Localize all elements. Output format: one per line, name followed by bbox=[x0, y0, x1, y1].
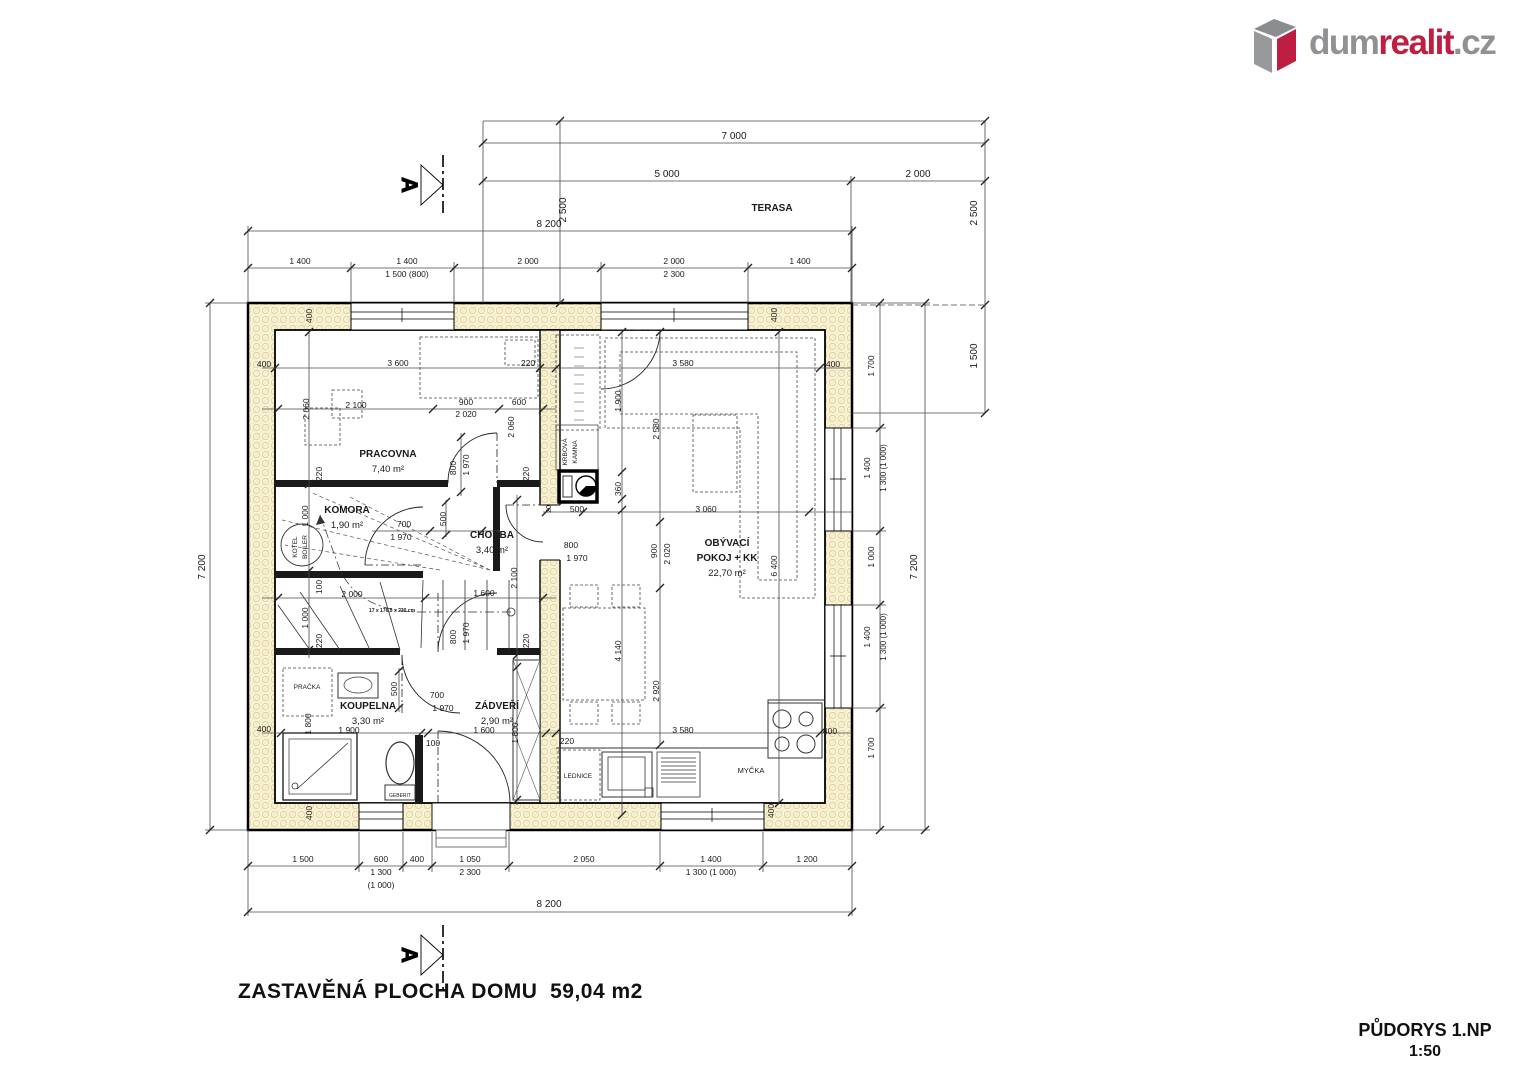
dim-label: 3 600 bbox=[387, 358, 409, 368]
dim-label: 600 bbox=[374, 854, 388, 864]
toilet-label: GEBERIT bbox=[389, 793, 411, 799]
room-name: TERASA bbox=[751, 203, 792, 214]
dim-label: 2 000 bbox=[341, 589, 363, 599]
dishwasher-label: MYČKA bbox=[738, 766, 765, 775]
dim-label: 2 500 bbox=[558, 197, 569, 222]
dim-label: 2 020 bbox=[662, 543, 672, 565]
window-koupelna bbox=[359, 803, 403, 830]
dim-label: 220 bbox=[560, 736, 574, 746]
section-triangle-top bbox=[421, 165, 443, 205]
dim-label: 2 050 bbox=[573, 854, 595, 864]
fireplace-label: KRBOVÁ bbox=[560, 438, 569, 466]
dim-label: 2 580 bbox=[651, 418, 661, 440]
dim-label: 2 060 bbox=[506, 416, 516, 438]
dim-label: 1 970 bbox=[461, 622, 471, 644]
dim-label: 800 bbox=[448, 461, 458, 475]
room-area: 2,90 m² bbox=[481, 716, 513, 727]
dim-label: 1 300 bbox=[370, 867, 392, 877]
floor-plan-sheet: dumrealit.cz dumrealit.cz bbox=[0, 0, 1527, 1080]
section-label-top: A bbox=[397, 177, 422, 193]
dim-label: 1 700 bbox=[866, 355, 876, 377]
room-name: PRACOVNA bbox=[359, 449, 416, 460]
window-living-lower bbox=[825, 605, 852, 708]
fireplace-label: KAMNA bbox=[572, 440, 579, 464]
dim-label: 1 200 bbox=[796, 854, 818, 864]
entrance-steps bbox=[436, 830, 506, 847]
drawing-scale: 1:50 bbox=[1340, 1043, 1510, 1061]
dim-label: 700 bbox=[430, 690, 444, 700]
dim-label: 1 700 bbox=[866, 737, 876, 759]
dim-label: 8 200 bbox=[536, 899, 561, 910]
dim-label: 2 100 bbox=[509, 567, 519, 589]
entrance-door-opening bbox=[432, 803, 510, 830]
dim-label: 3 580 bbox=[672, 725, 694, 735]
dim-label: 900 bbox=[459, 397, 473, 407]
dim-label: 7 200 bbox=[909, 554, 920, 579]
dim-label: 400 bbox=[823, 726, 837, 736]
room-area: 3,30 m² bbox=[352, 716, 384, 727]
dim-label: 400 bbox=[410, 854, 424, 864]
washer-label: PRAČKA bbox=[294, 682, 321, 691]
dim-label: 220 bbox=[521, 467, 531, 481]
dim-label: 2 000 bbox=[663, 256, 685, 266]
window-living-upper bbox=[825, 428, 852, 531]
dim-label: 600 bbox=[512, 397, 526, 407]
logo-part2: realit bbox=[1378, 23, 1453, 62]
logo-part1: dum bbox=[1309, 23, 1378, 62]
dim-label: 1 800 bbox=[303, 713, 313, 735]
dim-label: 1 400 bbox=[862, 457, 872, 479]
dim-label: 2 000 bbox=[905, 169, 930, 180]
dim-label: 1 970 bbox=[461, 454, 471, 476]
title-block: PŮDORYS 1.NP 1:50 bbox=[1340, 1020, 1510, 1061]
window-terrace-door bbox=[601, 303, 748, 330]
dim-label: 360 bbox=[613, 482, 623, 496]
dim-label: 7 200 bbox=[197, 554, 208, 579]
dim-label: 1 050 bbox=[459, 854, 481, 864]
dim-label: 1 300 (1 000) bbox=[879, 613, 888, 661]
dim-label: 800 bbox=[448, 630, 458, 644]
dim-label: 1 500 bbox=[292, 854, 314, 864]
room-name: OBÝVACÍ bbox=[705, 536, 750, 549]
dim-label: 2 020 bbox=[455, 409, 477, 419]
dim-label: 400 bbox=[257, 359, 271, 369]
boiler-label: BOILER bbox=[302, 535, 309, 559]
dumrealit-logo: dumrealit.cz bbox=[1251, 12, 1495, 74]
dim-label: 1 000 bbox=[300, 505, 310, 527]
logo-part3: .cz bbox=[1453, 23, 1495, 62]
dim-label: 2 000 bbox=[517, 256, 539, 266]
room-name: CHODBA bbox=[470, 530, 514, 541]
room-name: POKOJ + KK bbox=[697, 553, 759, 564]
dim-label: 1 000 bbox=[866, 546, 876, 568]
room-name: KOMORA bbox=[324, 505, 370, 516]
dim-label: 4 140 bbox=[613, 640, 623, 662]
dim-label: 1 300 (1 000) bbox=[686, 867, 737, 877]
drawing-title: PŮDORYS 1.NP bbox=[1340, 1020, 1510, 1041]
window-kitchen bbox=[661, 803, 764, 830]
room-area: 22,70 m² bbox=[708, 568, 746, 579]
dim-label: 2 500 bbox=[969, 200, 980, 225]
dim-label: 220 bbox=[521, 634, 531, 648]
dim-label: 1 600 bbox=[473, 588, 495, 598]
section-label-bottom: A bbox=[397, 947, 422, 963]
dim-label: 1 400 bbox=[862, 626, 872, 648]
dim-label: 2 100 bbox=[345, 400, 367, 410]
room-name: KOUPELNA bbox=[340, 701, 396, 712]
dim-label: 6 400 bbox=[769, 555, 779, 577]
dim-label: 900 bbox=[649, 544, 659, 558]
dim-label: 400 bbox=[304, 309, 314, 323]
dim-label: 1 400 bbox=[789, 256, 811, 266]
dim-label: 5 000 bbox=[654, 169, 679, 180]
dim-label: 1 970 bbox=[432, 703, 454, 713]
boiler-label: KOTEL bbox=[292, 536, 299, 558]
dim-label: 1 400 bbox=[289, 256, 311, 266]
dim-label: 1 400 bbox=[700, 854, 722, 864]
room-name: ZÁDVEŘÍ bbox=[475, 699, 519, 712]
dim-label: 400 bbox=[769, 308, 779, 322]
dim-label: 400 bbox=[766, 804, 776, 818]
logo-box-icon bbox=[1251, 12, 1299, 74]
dim-label: 1 970 bbox=[390, 532, 412, 542]
dim-label: 220 bbox=[521, 358, 535, 368]
dim-label: 800 bbox=[564, 540, 578, 550]
dim-label: 1 500 bbox=[969, 343, 980, 368]
dim-label: 400 bbox=[826, 359, 840, 369]
dim-label: 220 bbox=[314, 467, 324, 481]
dim-label: (1 000) bbox=[368, 880, 395, 890]
dim-label: 2 060 bbox=[301, 398, 311, 420]
built-area-note: ZASTAVĚNÁ PLOCHA DOMU 59,04 m2 bbox=[238, 980, 643, 1004]
dim-label: 2 300 bbox=[459, 867, 481, 877]
dim-label: 100 bbox=[314, 580, 324, 594]
dim-label: 1 500 (800) bbox=[385, 269, 429, 279]
dim-label: 3 060 bbox=[695, 504, 717, 514]
logo-wordmark: dumrealit.cz bbox=[1309, 12, 1495, 74]
fridge-label: LEDNICE bbox=[564, 773, 593, 780]
dim-label: 400 bbox=[304, 806, 314, 820]
dim-label: 500 bbox=[438, 512, 448, 526]
section-triangle-bottom bbox=[421, 935, 443, 975]
dim-label: 500 bbox=[389, 682, 399, 696]
room-area: 3,40 m² bbox=[476, 545, 508, 556]
dim-label: 400 bbox=[257, 724, 271, 734]
dim-label: 1 000 bbox=[300, 607, 310, 629]
window-pracovna bbox=[351, 303, 454, 330]
dim-label: 1 300 (1 000) bbox=[879, 444, 888, 492]
room-area: 7,40 m² bbox=[372, 464, 404, 475]
dim-label: 20 bbox=[546, 505, 553, 513]
dim-label: 2 300 bbox=[663, 269, 685, 279]
dim-label: 17 x 176,5 x 230 cm bbox=[369, 608, 416, 614]
dim-label: 1 970 bbox=[566, 553, 588, 563]
dim-label: 220 bbox=[314, 634, 324, 648]
dim-label: 500 bbox=[570, 504, 584, 514]
dim-label: 700 bbox=[397, 519, 411, 529]
floor-plan: dumrealit.cz bbox=[0, 0, 1527, 1080]
dim-label: 2 920 bbox=[651, 680, 661, 702]
room-area: 1,90 m² bbox=[331, 520, 363, 531]
dim-label: 100 bbox=[426, 738, 440, 748]
dim-label: 3 580 bbox=[672, 358, 694, 368]
dim-label: 1 900 bbox=[613, 390, 623, 412]
dim-label: 1 400 bbox=[396, 256, 418, 266]
dim-label: 7 000 bbox=[721, 131, 746, 142]
